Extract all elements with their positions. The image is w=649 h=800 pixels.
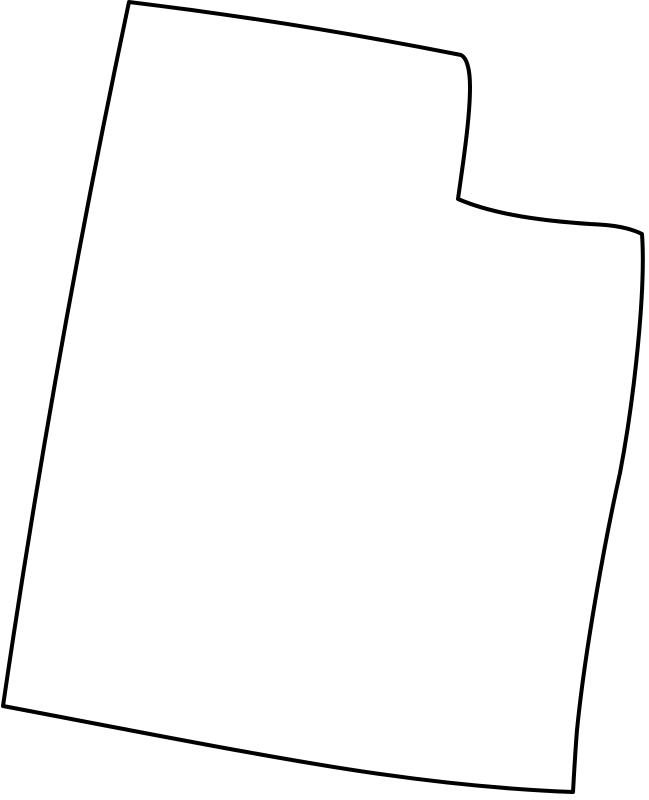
map-canvas	[0, 0, 649, 800]
state-outline-svg	[0, 0, 649, 800]
utah-state-outline	[3, 2, 643, 792]
